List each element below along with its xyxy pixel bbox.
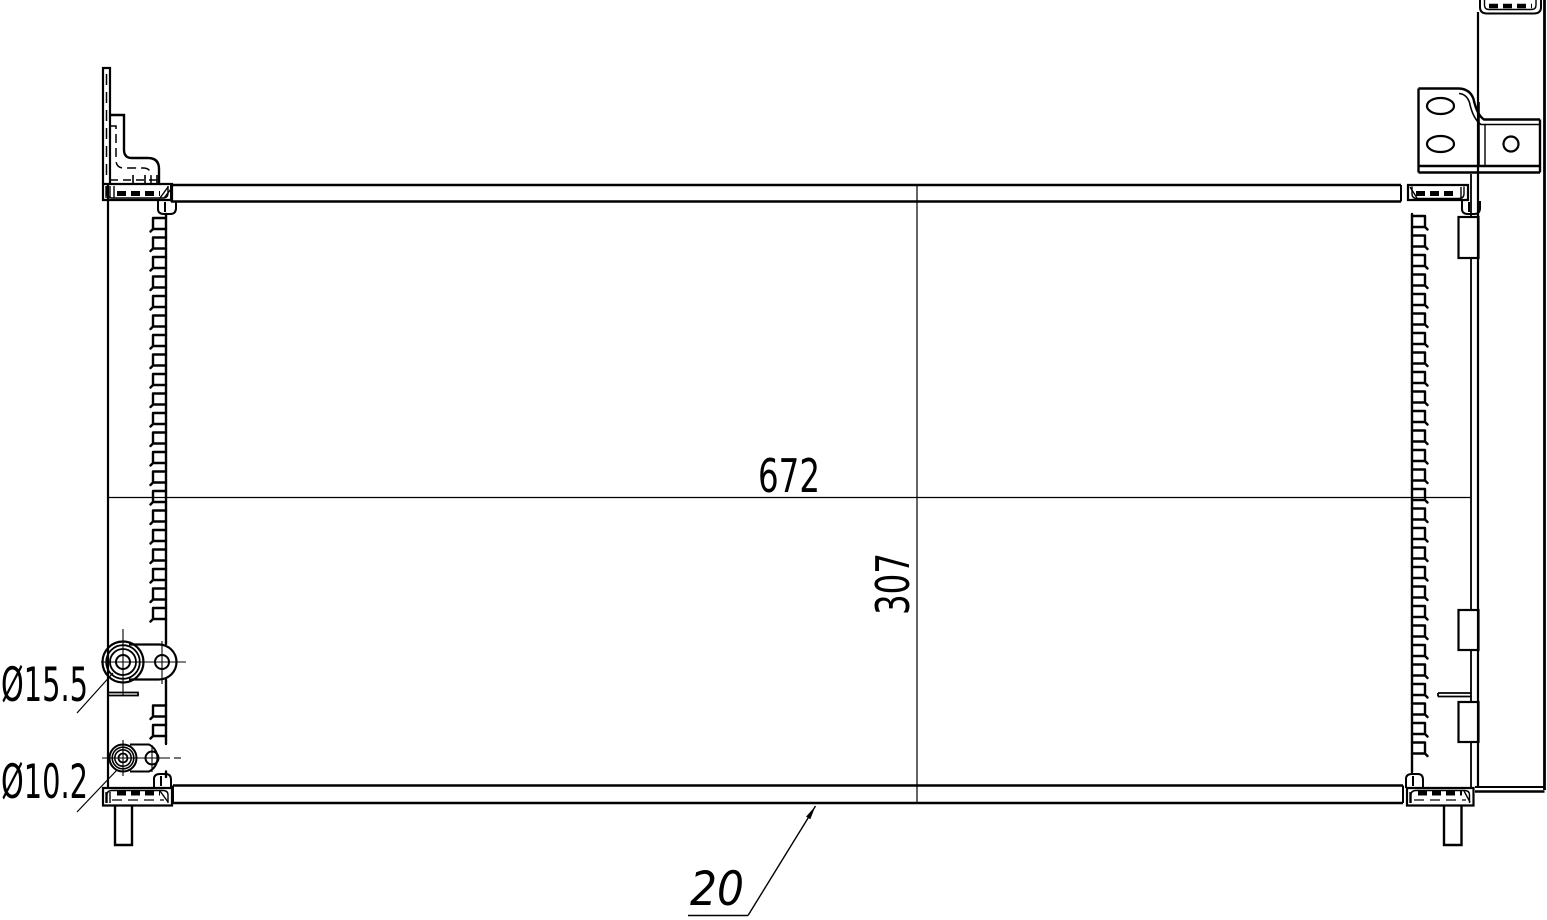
dimension-annotations: 672 307 Ø15.5 Ø10.2 20 <box>1 449 920 917</box>
drawing-canvas: 672 307 Ø15.5 Ø10.2 20 <box>0 0 1547 920</box>
bracket-l-outline <box>110 115 159 184</box>
top-left-end-cap <box>103 184 172 200</box>
tube-bracket-1 <box>1459 217 1479 258</box>
slot-hole-upper <box>1427 98 1454 114</box>
thickness-leader-arrowhead <box>806 806 815 819</box>
dim-inlet-diameter: Ø15.5 <box>1 658 88 713</box>
dim-core-height: 307 <box>866 553 920 615</box>
dim-outlet-diameter: Ø10.2 <box>1 755 88 810</box>
dim-core-width: 672 <box>758 449 820 503</box>
bolt-hole <box>1504 137 1519 152</box>
clip-bottom-left <box>154 774 171 788</box>
mount-pin-left <box>115 806 132 846</box>
dim-thickness: 20 <box>690 862 744 917</box>
slot-hole-lower <box>1427 136 1454 152</box>
right-fin-strip <box>1412 214 1428 772</box>
tube-tab <box>1438 693 1471 697</box>
upper-pipe-fitting <box>101 629 186 696</box>
clip-bottom-right <box>1406 774 1423 788</box>
bottom-left-foot <box>103 788 172 845</box>
condenser-engineering-drawing: 672 307 Ø15.5 Ø10.2 20 <box>0 0 1547 920</box>
mount-pin-right <box>1444 806 1462 846</box>
fold-curve-outer <box>1459 89 1540 120</box>
left-fin-strip <box>151 214 167 777</box>
lower-pipe-fitting <box>102 740 186 776</box>
top-header-tank <box>171 185 1401 202</box>
top-left-bracket <box>103 68 159 184</box>
top-right-bracket <box>1419 89 1541 173</box>
bottom-header-tank <box>173 786 1403 804</box>
top-right-end-cap <box>1408 185 1468 200</box>
cap-end-hatch-1 <box>1410 187 1417 198</box>
tube-bracket-3 <box>1459 702 1479 742</box>
thickness-leader-line <box>748 806 816 916</box>
bottom-right-foot <box>1407 788 1474 845</box>
receiver-drier-tube <box>1438 174 1479 787</box>
left-fin-teeth <box>151 218 167 739</box>
tube-bracket-2 <box>1459 610 1479 650</box>
right-fin-teeth <box>1412 216 1428 756</box>
